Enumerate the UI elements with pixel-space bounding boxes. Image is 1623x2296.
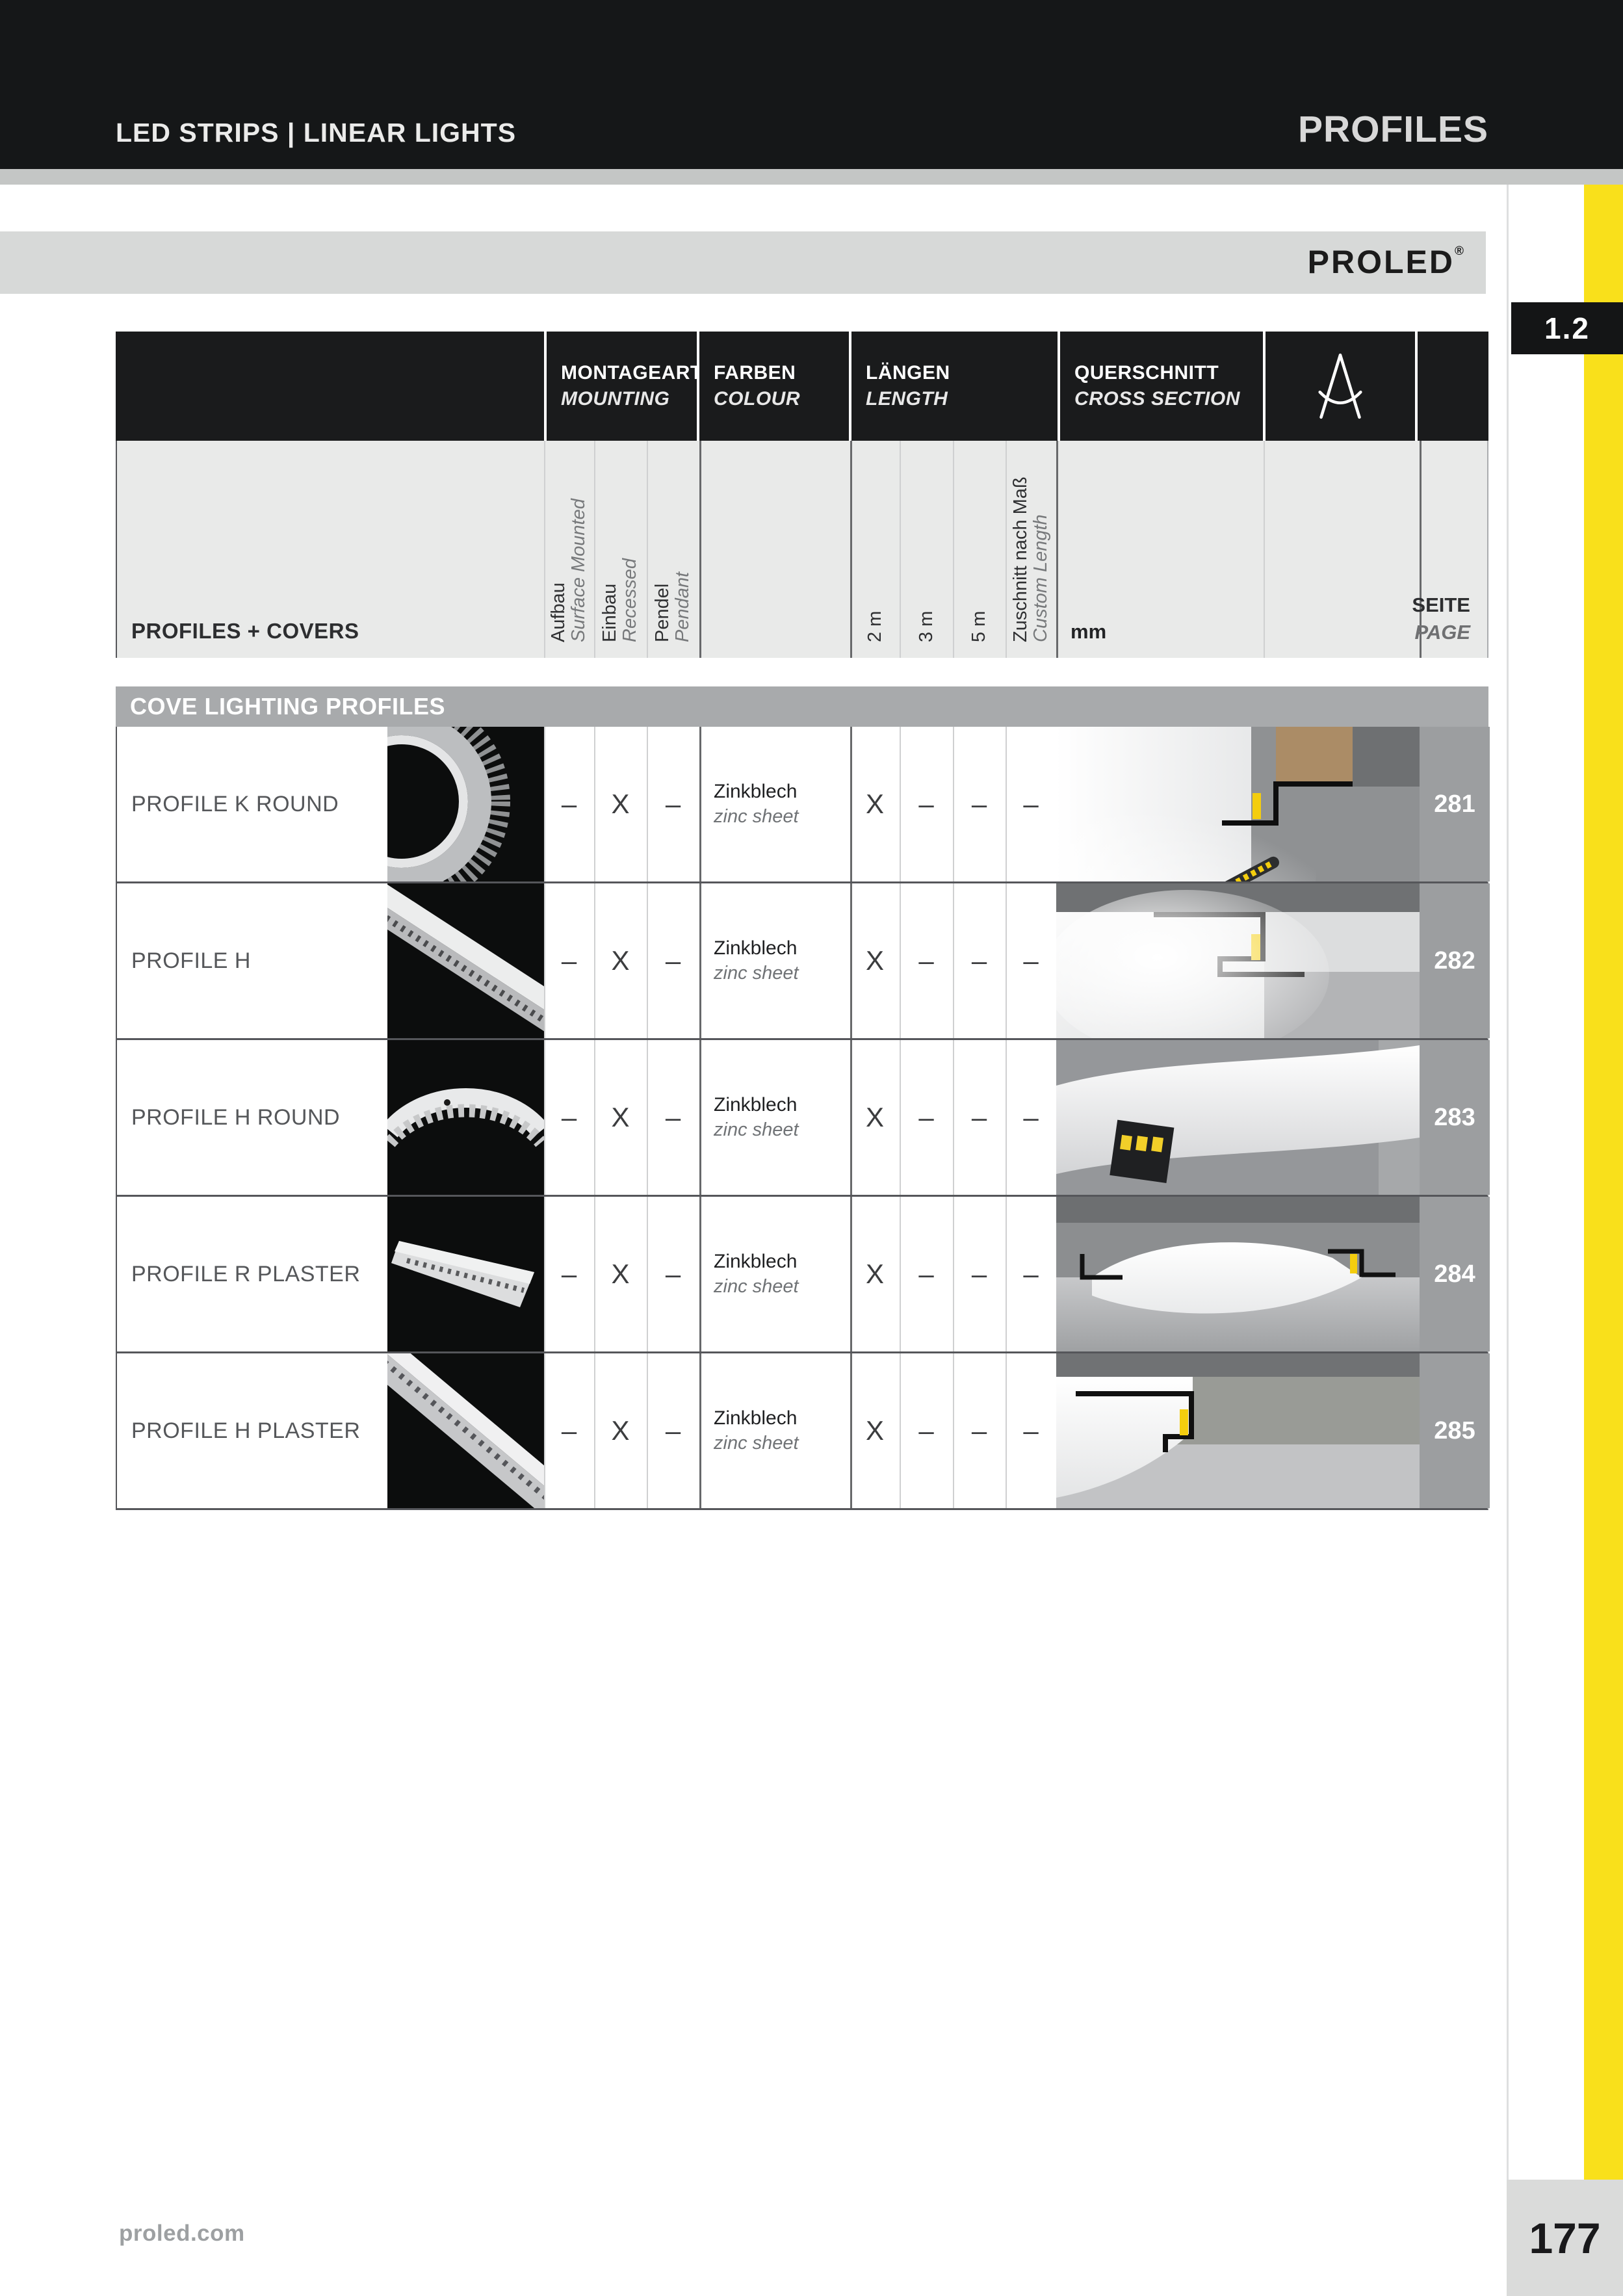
value-3m: – — [900, 727, 953, 881]
header-cell-products — [116, 332, 544, 441]
value-surface-mounted: – — [544, 883, 594, 1038]
value-surface-mounted: – — [544, 727, 594, 881]
value-5m: – — [953, 1040, 1006, 1195]
value-pendant: – — [647, 883, 699, 1038]
profile-name: PROFILE H ROUND — [117, 1040, 387, 1195]
col-label-custom-length: Zuschnitt nach MaßCustom Length — [1011, 476, 1051, 642]
value-surface-mounted: – — [544, 1353, 594, 1508]
value-recessed: X — [594, 883, 647, 1038]
header-cell-cut-icon — [1266, 332, 1415, 441]
table-row: PROFILE H PLASTER – X – Zinkblech zinc s… — [116, 1353, 1488, 1510]
value-2m: X — [850, 1197, 900, 1351]
header-cell-mounting: MONTAGEART MOUNTING — [547, 332, 697, 441]
profile-name: PROFILE H PLASTER — [117, 1353, 387, 1508]
value-3m: – — [900, 1353, 953, 1508]
brand-band: PROLED® — [0, 231, 1486, 294]
page-title: PROFILES — [1298, 108, 1488, 151]
value-custom-length: – — [1006, 1353, 1056, 1508]
value-pendant: – — [647, 1040, 699, 1195]
value-2m: X — [850, 1040, 900, 1195]
colour-cell: Zinkblech zinc sheet — [699, 1197, 850, 1351]
website-link[interactable]: proled.com — [119, 2221, 245, 2247]
product-photo-profile-h-round — [387, 1040, 544, 1195]
value-recessed: X — [594, 1040, 647, 1195]
page-ref: 281 — [1420, 727, 1490, 881]
colour-cell: Zinkblech zinc sheet — [699, 883, 850, 1038]
page-number-box: 177 — [1507, 2180, 1623, 2296]
value-3m: – — [900, 1197, 953, 1351]
cross-section-image — [1056, 1353, 1420, 1508]
col-label-mm: mm — [1071, 620, 1106, 644]
col-label-5m: 5 m — [969, 611, 989, 642]
page-ref: 283 — [1420, 1040, 1490, 1195]
header-cell-colour: FARBEN COLOUR — [699, 332, 849, 441]
value-custom-length: – — [1006, 883, 1056, 1038]
colour-cell: Zinkblech zinc sheet — [699, 1040, 850, 1195]
col-label-3m: 3 m — [916, 611, 937, 642]
table-row: PROFILE H – X – Zinkblech zinc sheet X – — [116, 883, 1488, 1040]
page-ref: 285 — [1420, 1353, 1490, 1508]
col-label-surface-mounted: AufbauSurface Mounted — [549, 499, 589, 642]
value-pendant: – — [647, 727, 699, 881]
table-header-groups: MONTAGEART MOUNTING FARBEN COLOUR LÄNGEN… — [116, 332, 1488, 441]
value-surface-mounted: – — [544, 1040, 594, 1195]
value-recessed: X — [594, 1353, 647, 1508]
category-title: LED STRIPS | LINEAR LIGHTS — [116, 118, 516, 148]
value-custom-length: – — [1006, 1197, 1056, 1351]
registered-mark: ® — [1455, 244, 1464, 258]
product-photo-profile-h-plaster — [387, 1353, 544, 1508]
chapter-tab: 1.2 — [1511, 302, 1623, 354]
col-label-page: SEITEPAGE — [1412, 592, 1470, 646]
value-pendant: – — [647, 1353, 699, 1508]
value-custom-length: – — [1006, 1040, 1056, 1195]
page-ref: 284 — [1420, 1197, 1490, 1351]
cross-section-image — [1056, 1040, 1420, 1195]
section-header: COVE LIGHTING PROFILES — [116, 686, 1488, 727]
value-custom-length: – — [1006, 727, 1056, 881]
catalog-page: LED STRIPS | LINEAR LIGHTS PROFILES PROL… — [0, 0, 1623, 2296]
profile-name: PROFILE K ROUND — [117, 727, 387, 881]
divider-strip — [0, 169, 1623, 185]
product-photo-profile-h — [387, 883, 544, 1038]
yellow-edge-stripe — [1584, 185, 1623, 2180]
compass-a-icon — [1310, 346, 1370, 426]
col-label-recessed: EinbauRecessed — [600, 558, 640, 642]
value-surface-mounted: – — [544, 1197, 594, 1351]
product-photo-profile-r-plaster — [387, 1197, 544, 1351]
product-photo-profile-k-round — [387, 727, 544, 881]
value-5m: – — [953, 1353, 1006, 1508]
product-table-body: PROFILE K ROUND – X – Zinkblech zinc she… — [116, 727, 1488, 1510]
table-row: PROFILE R PLASTER – X – Zinkblech zinc s… — [116, 1197, 1488, 1353]
cross-section-image — [1056, 883, 1420, 1038]
table-row: PROFILE H ROUND – X – Zinkblech zinc she… — [116, 1040, 1488, 1197]
value-5m: – — [953, 883, 1006, 1038]
cross-section-image — [1056, 727, 1420, 881]
col-label-2m: 2 m — [865, 611, 885, 642]
value-2m: X — [850, 1353, 900, 1508]
value-pendant: – — [647, 1197, 699, 1351]
profile-name: PROFILE R PLASTER — [117, 1197, 387, 1351]
value-recessed: X — [594, 1197, 647, 1351]
value-2m: X — [850, 883, 900, 1038]
value-3m: – — [900, 883, 953, 1038]
colour-cell: Zinkblech zinc sheet — [699, 727, 850, 881]
value-3m: – — [900, 1040, 953, 1195]
value-recessed: X — [594, 727, 647, 881]
margin-divider-line — [1507, 185, 1509, 2180]
value-2m: X — [850, 727, 900, 881]
profile-name: PROFILE H — [117, 883, 387, 1038]
header-cell-page — [1418, 332, 1488, 441]
page-ref: 282 — [1420, 883, 1490, 1038]
top-title-bar: LED STRIPS | LINEAR LIGHTS PROFILES — [0, 0, 1623, 169]
value-5m: – — [953, 727, 1006, 881]
row-group-label: PROFILES + COVERS — [131, 619, 359, 644]
cross-section-image — [1056, 1197, 1420, 1351]
value-5m: – — [953, 1197, 1006, 1351]
proled-logo: PROLED® — [1308, 243, 1464, 281]
table-header-subcolumns: PROFILES + COVERS AufbauSurface Mounted … — [116, 441, 1488, 658]
colour-cell: Zinkblech zinc sheet — [699, 1353, 850, 1508]
header-cell-cross-section: QUERSCHNITT CROSS SECTION — [1060, 332, 1263, 441]
header-cell-length: LÄNGEN LENGTH — [851, 332, 1058, 441]
col-label-pendant: PendelPendant — [653, 572, 693, 642]
table-row: PROFILE K ROUND – X – Zinkblech zinc she… — [116, 727, 1488, 883]
